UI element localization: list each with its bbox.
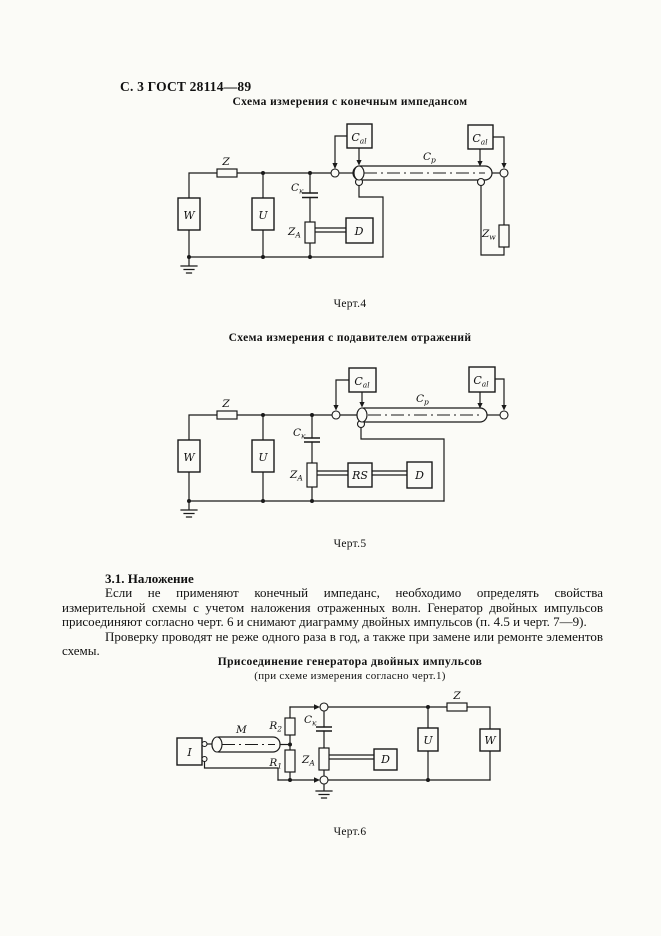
connector-terminal	[202, 742, 207, 747]
z-resistor	[447, 703, 467, 711]
figure-6-title: Присоединение генератора двойных импульс…	[140, 656, 560, 668]
za-box	[319, 748, 329, 770]
connector-terminal	[331, 169, 339, 177]
z-label: Z	[221, 156, 230, 168]
page-header: С. 3 ГОСТ 28114—89	[120, 79, 251, 95]
za-label: ZА	[289, 469, 303, 483]
i-label: I	[186, 746, 192, 759]
paragraph: Проверку проводят не реже одного раза в …	[62, 630, 603, 659]
zw-resistor	[499, 225, 509, 247]
ground-symbol	[316, 784, 332, 798]
z-label: Z	[221, 398, 230, 410]
w-label: W	[484, 734, 497, 747]
za-box	[305, 222, 315, 243]
za-box	[307, 463, 317, 487]
d-label: D	[414, 469, 424, 482]
figure-6-caption: Черт.6	[140, 826, 560, 838]
figure-4-diagram: Z W U Cal Cal Cp Cк ZА D Zw	[140, 113, 560, 303]
zw-label: Zw	[481, 228, 496, 242]
cp-label: Cp	[416, 393, 429, 407]
connector-terminal	[212, 737, 222, 752]
ck-label: Cк	[304, 714, 317, 728]
za-label: ZА	[301, 754, 315, 768]
figure-6-subtitle: (при схеме измерения согласно черт.1)	[140, 670, 560, 682]
connector-terminal	[202, 757, 207, 762]
figure-5-caption: Черт.5	[140, 538, 560, 550]
u-label: U	[258, 209, 268, 222]
wiring	[189, 379, 504, 501]
rs-label: RS	[351, 469, 368, 482]
connector-terminal	[478, 179, 485, 186]
figure-6-diagram: I M R2 R1 Cк ZА D Z U W	[140, 688, 560, 823]
ck-label: Cк	[293, 427, 306, 441]
w-label: W	[183, 209, 196, 222]
section-body: Если не применяют конечный импеданс, нео…	[62, 586, 603, 659]
cable-cp	[357, 408, 487, 428]
r2-label: R2	[268, 720, 282, 734]
cable-cp	[353, 166, 492, 186]
cable-m	[212, 737, 280, 752]
connector-terminal	[500, 411, 508, 419]
ck-capacitor	[316, 727, 332, 731]
u-label: U	[258, 451, 268, 464]
connector-terminal	[332, 411, 340, 419]
figure-5-diagram: Z W U Cal Cal Cp Cк ZА RS D	[140, 355, 560, 550]
d-label: D	[354, 225, 364, 238]
d-label: D	[380, 753, 390, 766]
connector-terminal	[320, 703, 328, 711]
ground-symbol	[181, 502, 197, 517]
connector-terminal	[320, 776, 328, 784]
r2-resistor	[285, 718, 295, 735]
za-label: ZА	[287, 226, 301, 240]
ck-label: Cк	[291, 182, 304, 196]
u-label: U	[423, 734, 433, 747]
paragraph: Если не применяют конечный импеданс, нео…	[62, 586, 603, 630]
arrowheads	[314, 704, 320, 782]
m-label: M	[235, 724, 247, 736]
ground-symbol	[181, 258, 197, 273]
connector-terminal	[354, 166, 364, 180]
ck-capacitor	[302, 193, 318, 198]
figure-5-title: Схема измерения с подавителем отражений	[140, 332, 560, 344]
connector-terminal	[357, 408, 367, 422]
figure-4-caption: Черт.4	[140, 298, 560, 310]
w-label: W	[183, 451, 196, 464]
z-resistor	[217, 169, 237, 177]
figure-4-title: Схема измерения с конечным импедансом	[140, 96, 560, 108]
cp-label: Cp	[423, 151, 436, 165]
connector-terminal	[500, 169, 508, 177]
z-resistor	[217, 411, 237, 419]
labels: Z W U Cal Cal Cp Cк ZА D Zw	[183, 131, 496, 242]
r1-resistor	[285, 750, 295, 772]
r1-label: R1	[268, 757, 282, 771]
ck-capacitor	[304, 438, 320, 442]
z-label: Z	[452, 690, 461, 702]
